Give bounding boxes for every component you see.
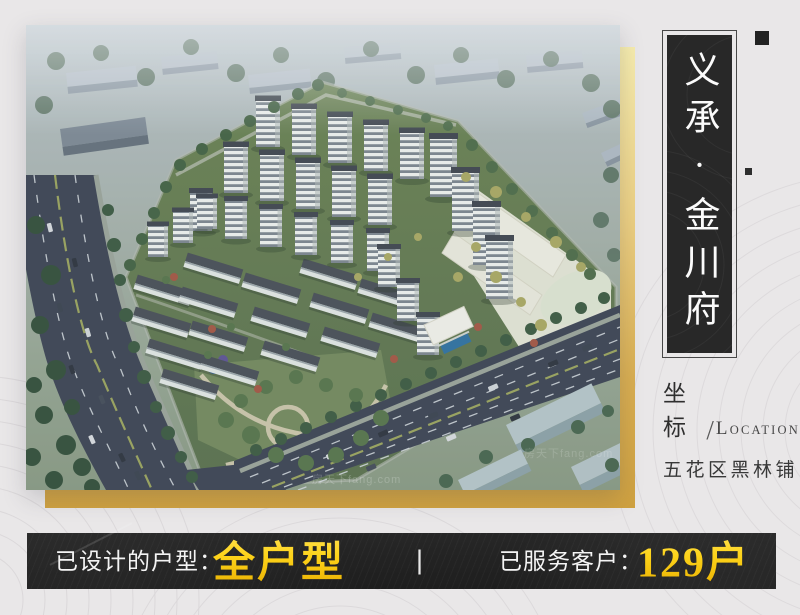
served-clients-value: 129户 [637, 529, 750, 590]
aerial-render-photo: 房天下fang.com 房天下fang.com [26, 25, 620, 490]
location-address: 五花区黑林铺 [663, 455, 800, 482]
aerial-render-illustration: 房天下fang.com 房天下fang.com [26, 25, 620, 490]
stats-divider: | [416, 533, 423, 589]
location-heading: 坐标 / Location [663, 374, 800, 442]
designed-units-label: 已设计的户型： [55, 533, 223, 589]
location-label-zh: 坐标 [663, 374, 706, 442]
served-clients-label: 已服务客户： [499, 533, 643, 589]
location-block: 坐标 / Location 五花区黑林铺 [663, 374, 800, 482]
stats-bar: 已设计的户型： 全户型 | 已服务客户： 129户 [27, 533, 776, 589]
slash-separator: / [706, 418, 714, 442]
project-title-banner: 义承·金川府 [662, 30, 737, 358]
project-title-banner-inner: 义承·金川府 [667, 35, 732, 353]
watermark-text: 房天下fang.com [524, 447, 613, 460]
designed-units-value: 全户型 [213, 529, 345, 590]
location-label-en: Location [716, 418, 800, 442]
watermark-text: 房天下fang.com [312, 473, 401, 486]
project-title: 义承·金川府 [682, 51, 718, 337]
decorative-square-small [745, 168, 752, 175]
blue-tint [26, 25, 620, 490]
decorative-square-large [755, 31, 769, 45]
